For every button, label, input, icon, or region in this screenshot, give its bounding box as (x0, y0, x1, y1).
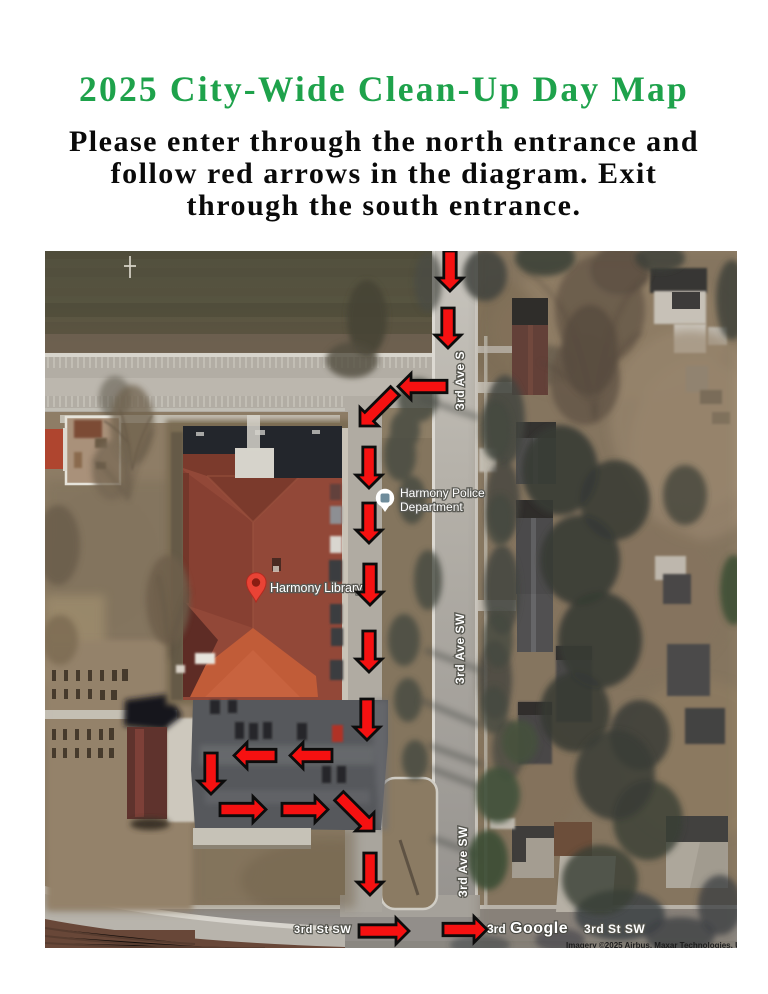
svg-text:Harmony Library: Harmony Library (270, 581, 363, 595)
svg-text:Harmony Police: Harmony Police (400, 486, 485, 500)
svg-text:3rd Ave SW: 3rd Ave SW (453, 613, 467, 684)
svg-text:3rd St SW: 3rd St SW (294, 924, 351, 936)
svg-text:Imagery ©2025 Airbus, Maxar Te: Imagery ©2025 Airbus, Maxar Technologies… (566, 941, 737, 948)
svg-text:3rd Ave SW: 3rd Ave SW (456, 826, 470, 897)
svg-text:3rd: 3rd (487, 922, 506, 936)
svg-text:Department: Department (400, 500, 463, 514)
svg-text:3rd Ave S: 3rd Ave S (453, 351, 467, 410)
svg-text:Google: Google (510, 920, 568, 937)
svg-text:3rd St SW: 3rd St SW (584, 922, 645, 936)
